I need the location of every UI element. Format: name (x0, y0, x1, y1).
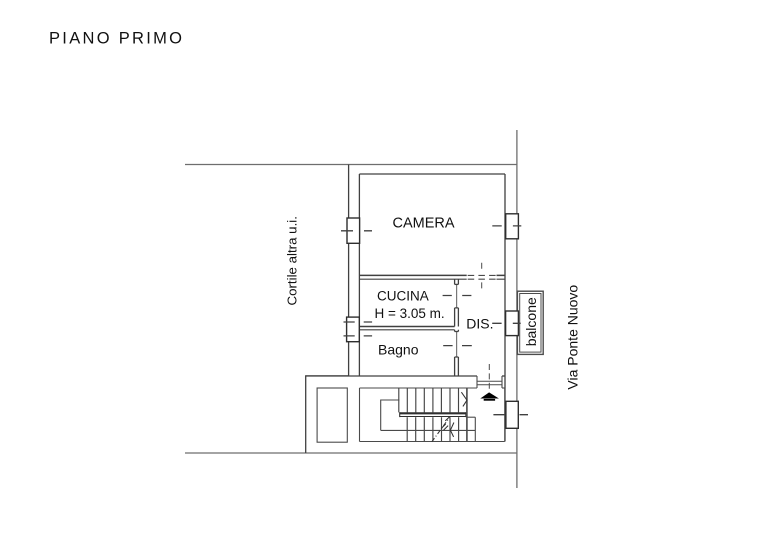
svg-text:Via Ponte Nuovo: Via Ponte Nuovo (565, 285, 581, 390)
svg-text:balcone: balcone (523, 297, 539, 346)
svg-text:CUCINA: CUCINA (377, 288, 429, 303)
svg-text:Bagno: Bagno (378, 342, 419, 358)
svg-text:H = 3.05 m.: H = 3.05 m. (375, 306, 445, 321)
svg-text:Cortile altra u.i.: Cortile altra u.i. (284, 216, 299, 305)
svg-text:CAMERA: CAMERA (393, 216, 455, 232)
svg-text:PIANO PRIMO: PIANO PRIMO (49, 29, 184, 47)
svg-text:DIS.: DIS. (466, 315, 493, 331)
